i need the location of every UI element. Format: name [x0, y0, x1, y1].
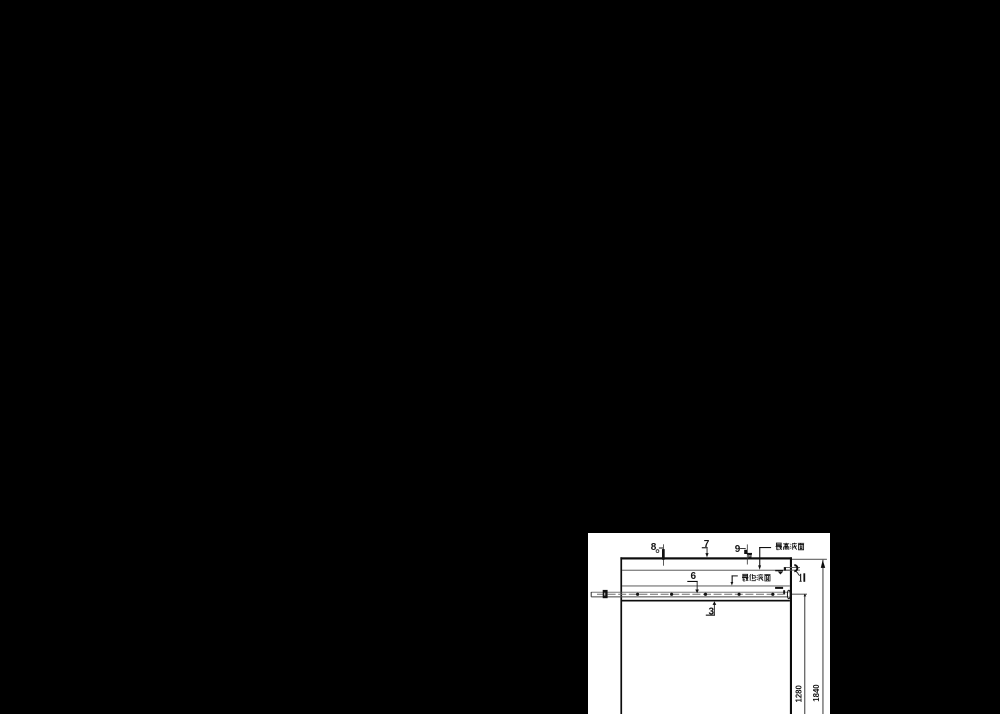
- svg-text:1280: 1280: [795, 684, 804, 702]
- svg-text:3: 3: [709, 607, 715, 618]
- svg-text:9: 9: [735, 544, 741, 555]
- svg-text:6: 6: [691, 571, 697, 582]
- svg-text:1840: 1840: [812, 684, 821, 702]
